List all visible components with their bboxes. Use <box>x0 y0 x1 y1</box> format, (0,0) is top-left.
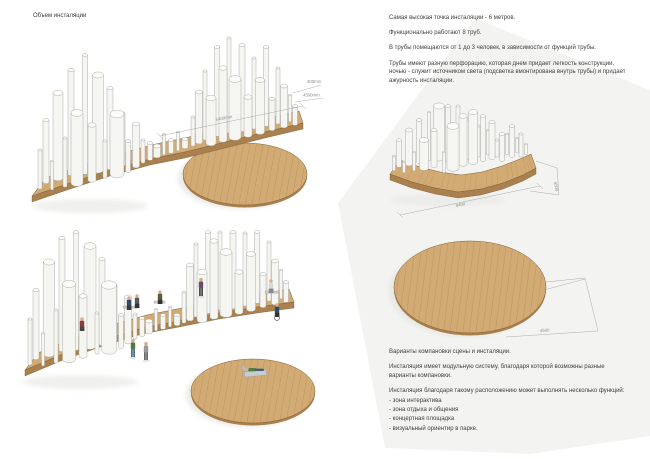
info-text-bottom: Варианты компановки сцены и инсталяции. … <box>389 348 632 434</box>
function-item-landmark: - визуальный ориентир в парке. <box>389 425 632 434</box>
scene2-graphics <box>22 230 317 427</box>
dimension-label-view3-length: 9400 <box>455 201 466 208</box>
functions-intro: Инсталяция благодаря такому расположению… <box>389 387 632 396</box>
scene3-graphics <box>389 103 546 337</box>
layout-heading: Варианты компановки сцены и инсталяции. <box>389 348 632 357</box>
dimension-label-view1-depth: 4500mm <box>303 93 320 98</box>
dimension-label-circle-diameter: 4500 <box>540 327 550 333</box>
fact-working-tubes: Функционально работают 8 труб. <box>389 29 632 38</box>
fact-perforation: Трубы имеют разную перфорацию, которая д… <box>389 60 632 86</box>
installation-view-with-people <box>5 224 325 446</box>
installation-view-top: 5400mm 300mm 4500mm <box>10 26 325 222</box>
page-title: Объем инсталяции <box>33 13 86 19</box>
dimension-label-view3-height: 4500 <box>553 181 560 192</box>
dimension-label-view1-thickness: 300mm <box>307 79 322 84</box>
info-text-top: Самая высокая точка инсталяции - 6 метро… <box>389 14 632 92</box>
installation-view-right: 9400 4500 4500 <box>378 98 650 343</box>
scene1-graphics <box>32 37 309 213</box>
modular-system-paragraph: Инсталяция имеет модульную систему, благ… <box>389 363 632 380</box>
fact-max-height: Самая высокая точка инсталяции - 6 метро… <box>389 14 632 23</box>
fact-capacity: В трубы помещаются от 1 до 3 человек, в … <box>389 44 632 53</box>
function-item-interactive: - зона интерактива <box>389 397 632 406</box>
function-item-rest: - зона отдыха и общения <box>389 406 632 415</box>
function-item-concert: - концертная площадка <box>389 415 632 424</box>
